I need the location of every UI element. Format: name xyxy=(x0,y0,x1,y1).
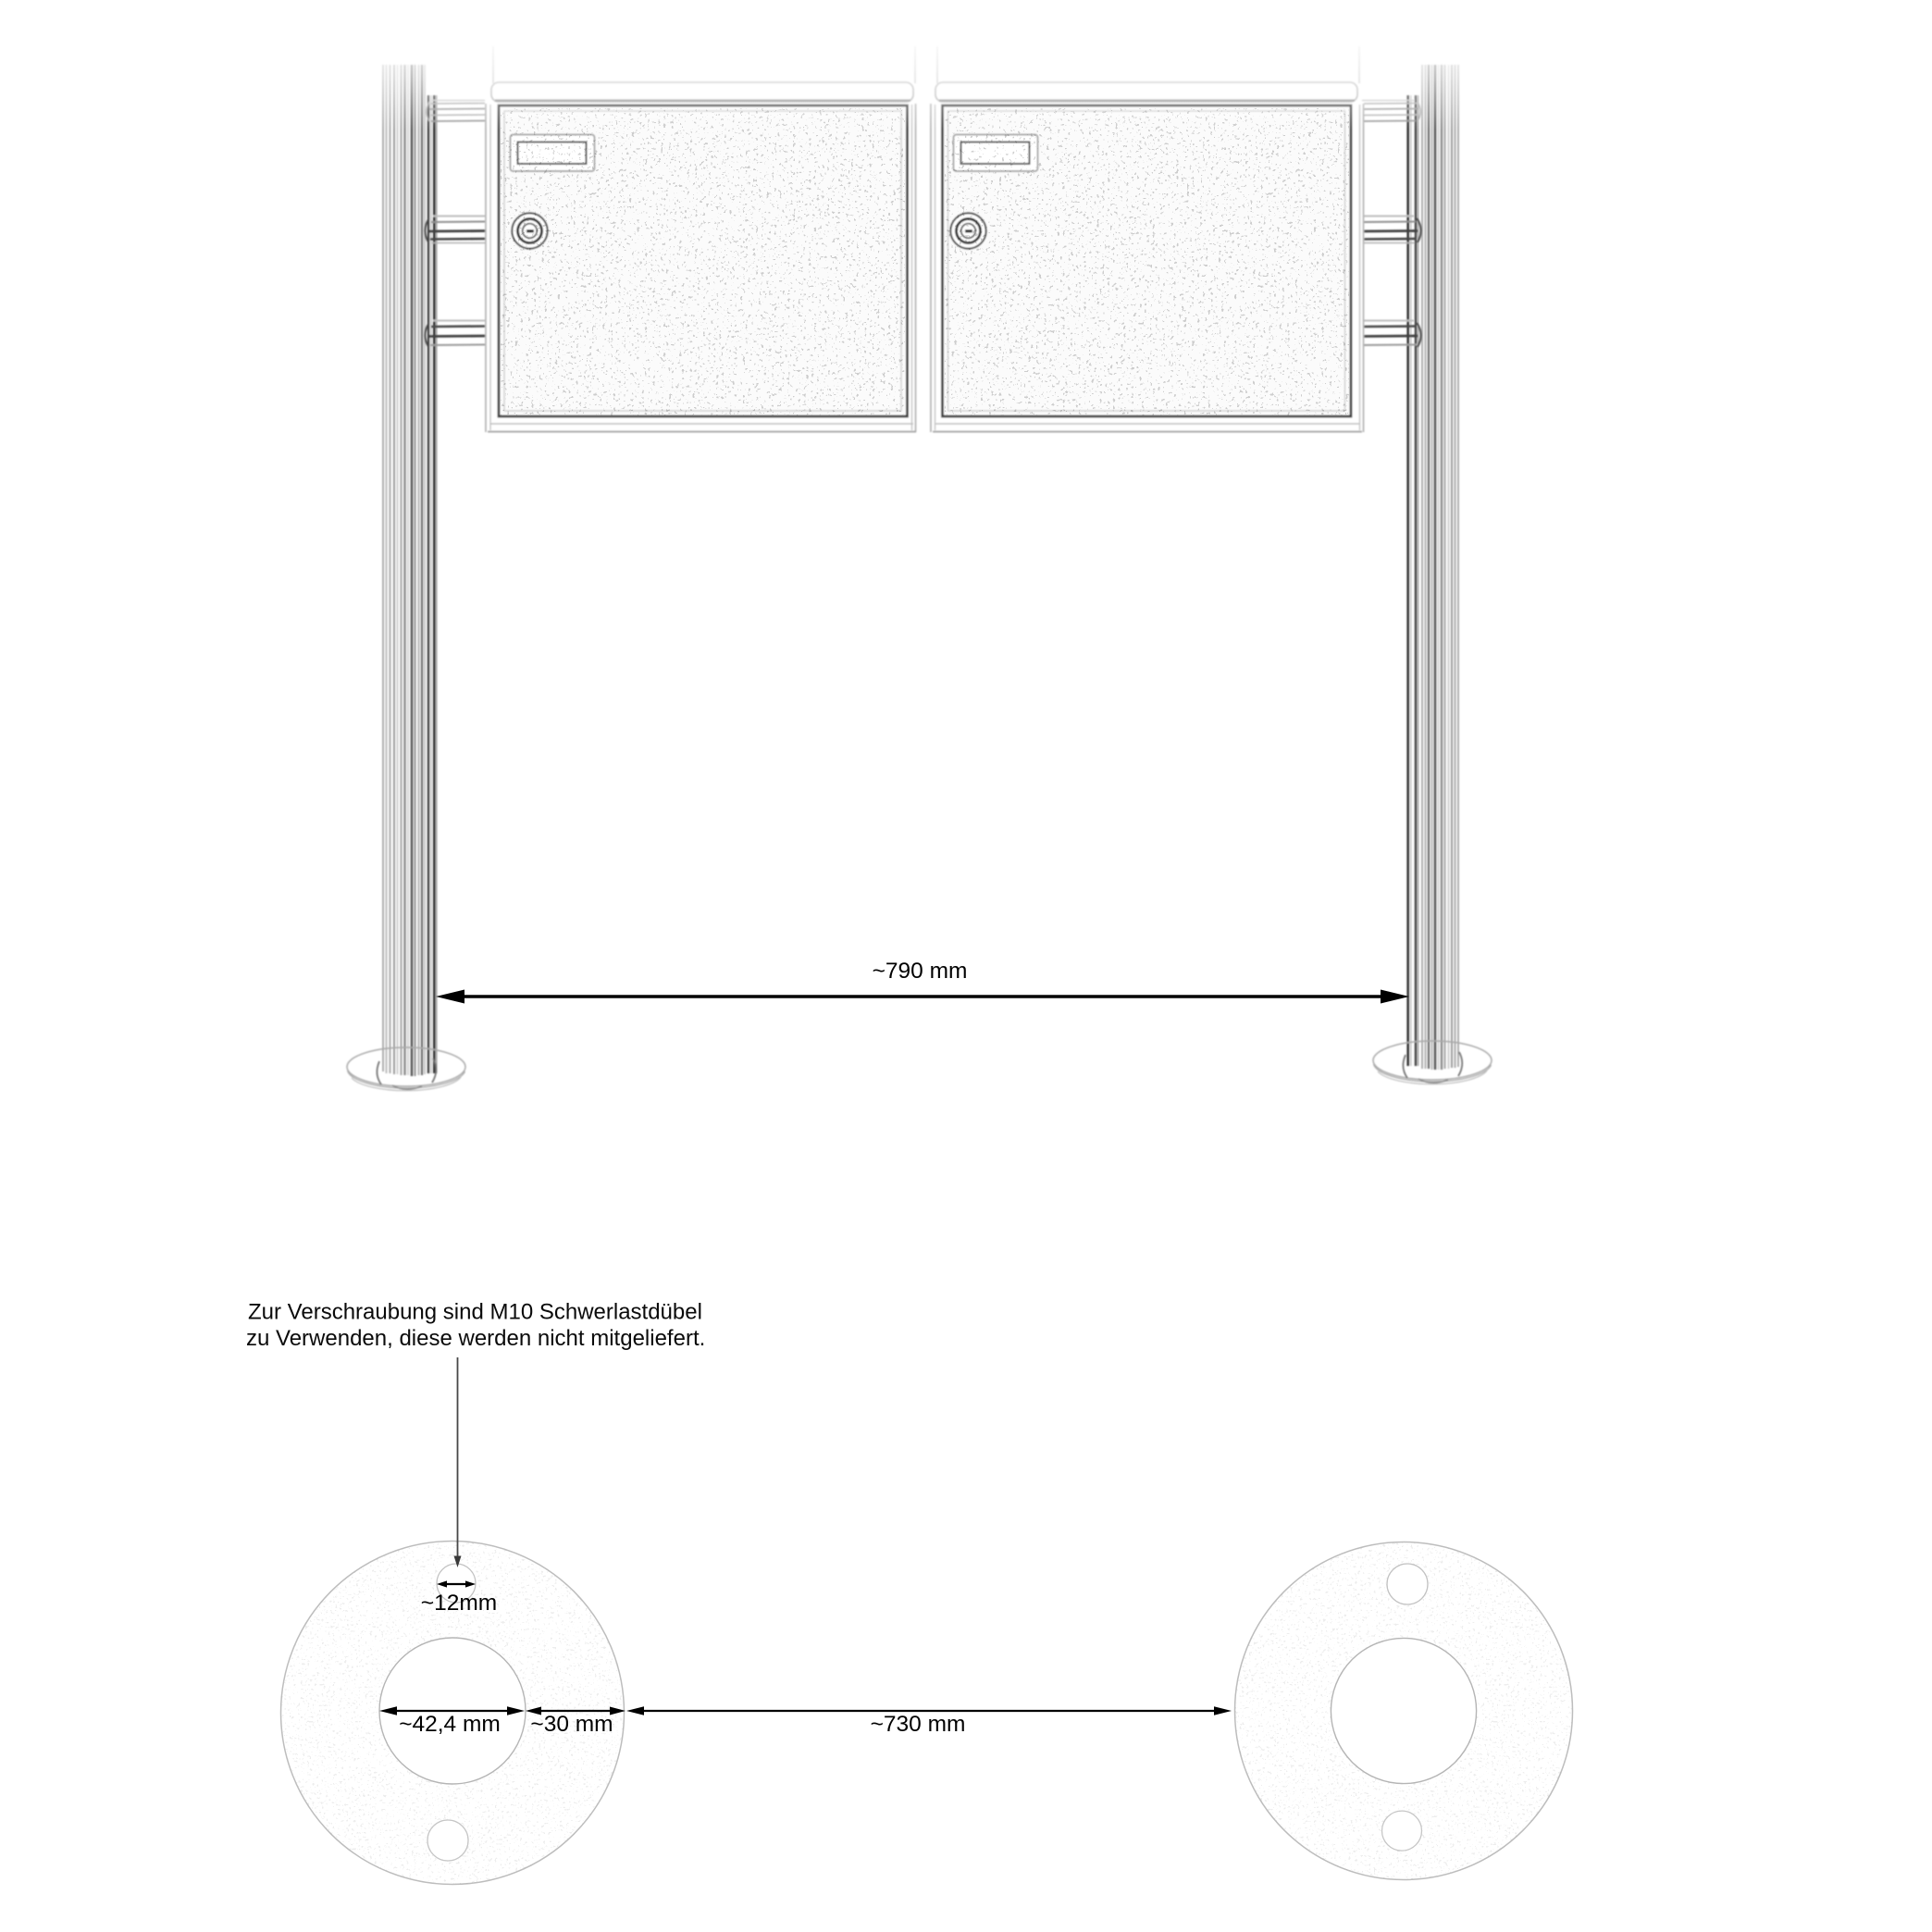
svg-text:~730 mm: ~730 mm xyxy=(871,1712,966,1737)
svg-text:~42,4 mm: ~42,4 mm xyxy=(399,1712,501,1737)
svg-text:~12mm: ~12mm xyxy=(421,1591,497,1616)
svg-text:Zur Verschraubung sind M10 Sch: Zur Verschraubung sind M10 Schwerlastdüb… xyxy=(248,1300,702,1325)
svg-text:~30 mm: ~30 mm xyxy=(530,1712,613,1737)
svg-text:zu Verwenden, diese werden nic: zu Verwenden, diese werden nicht mitgeli… xyxy=(246,1326,705,1351)
svg-text:~790 mm: ~790 mm xyxy=(873,959,968,984)
